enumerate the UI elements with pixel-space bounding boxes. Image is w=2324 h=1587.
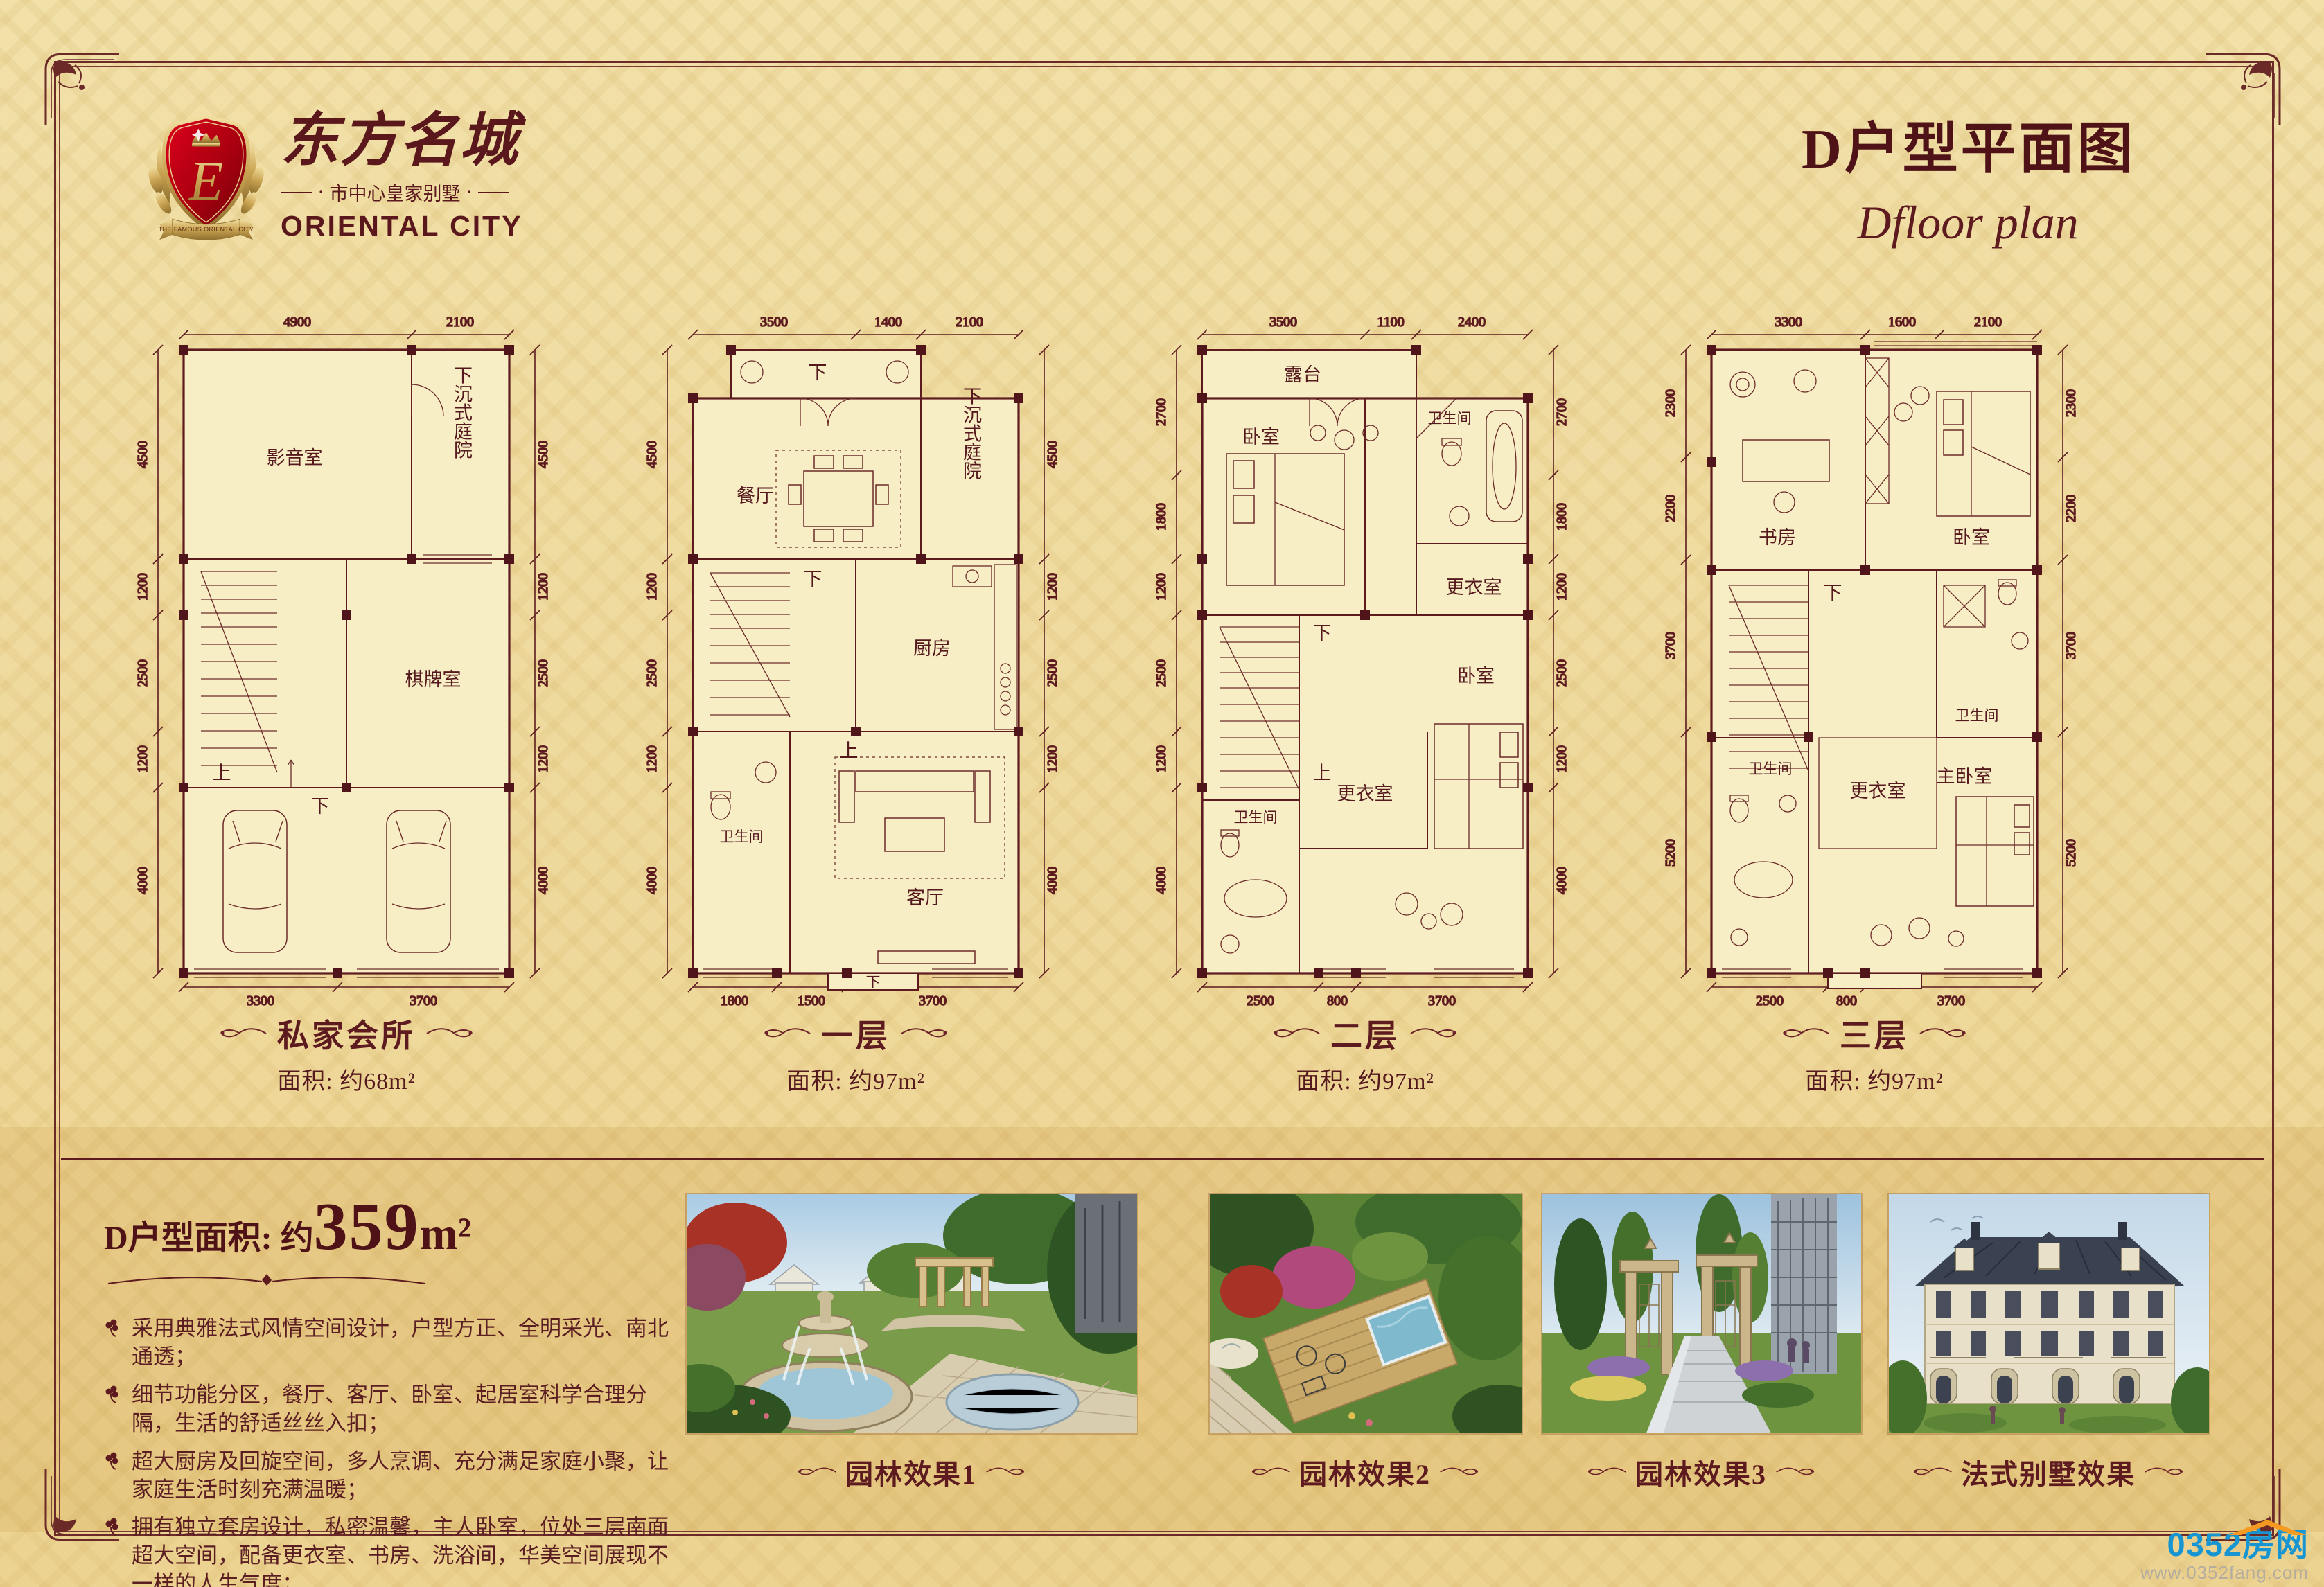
floorplan-floor2: 3500 1100 2400 2500 800 3700 2700 1800 1… — [1136, 294, 1594, 1096]
svg-text:1800: 1800 — [721, 993, 748, 1008]
room-label-bath: 卫生间 — [1428, 410, 1472, 427]
svg-text:1800: 1800 — [1554, 503, 1569, 531]
svg-text:4000: 4000 — [1045, 867, 1060, 894]
plan-body: 露台 卧室 卫生间 更衣室 下 上 更衣室 卧室 卫生间 — [1197, 345, 1533, 978]
svg-text:5200: 5200 — [1663, 839, 1678, 867]
room-label-study: 书房 — [1759, 527, 1796, 548]
room-label-bath2: 卫生间 — [1234, 809, 1278, 826]
svg-text:3700: 3700 — [919, 993, 947, 1008]
room-label-bath: 卫生间 — [1955, 707, 1999, 724]
photo-garden-2 — [1209, 1194, 1522, 1434]
plan-name: 一层 — [821, 1011, 890, 1056]
flourish-icon — [797, 1464, 837, 1480]
stair-up-label: 上 — [840, 741, 859, 761]
svg-text:1200: 1200 — [644, 573, 660, 601]
plan-body: 影音室 下沉式庭院 棋牌室 上 下 — [179, 345, 514, 978]
floorplan-floor1-drawing: 3500 1400 2100 1800 1500 3700 4500 1200 … — [627, 294, 1084, 1008]
plan-name: 三层 — [1840, 1011, 1909, 1056]
stair-up-label: 上 — [1313, 763, 1332, 783]
flourish-icon — [1251, 1464, 1291, 1480]
svg-text:2500: 2500 — [1554, 659, 1569, 687]
svg-text:2300: 2300 — [2063, 389, 2079, 417]
svg-text:1600: 1600 — [1888, 314, 1916, 330]
subtitle-dot: · — [466, 181, 473, 203]
area-heading-unit: m² — [420, 1209, 472, 1259]
svg-text:THE FAMOUS ORIENTAL CITY: THE FAMOUS ORIENTAL CITY — [159, 226, 254, 233]
feature-item: 超大厨房及回旋空间，多人烹调、充分满足家庭小聚，让家庭生活时刻充满温暖； — [104, 1448, 679, 1505]
subtitle-rule-right — [478, 192, 510, 193]
svg-text:2200: 2200 — [1663, 495, 1678, 522]
flourish-icon — [1587, 1464, 1627, 1480]
svg-text:2700: 2700 — [1554, 398, 1569, 426]
room-label-bedroom2: 卧室 — [1457, 666, 1495, 686]
room-label-chess: 棋牌室 — [405, 669, 461, 690]
svg-text:1200: 1200 — [536, 573, 551, 601]
svg-text:2400: 2400 — [1458, 314, 1486, 330]
stair-up-label: 上 — [213, 763, 231, 783]
flourish-icon — [1409, 1025, 1458, 1043]
feature-item: 细节功能分区，餐厅、客厅、卧室、起居室科学合理分隔，生活的舒适丝丝入扣； — [104, 1381, 679, 1438]
svg-text:2500: 2500 — [536, 659, 551, 687]
plan-area: 面积: 约68m² — [118, 1062, 575, 1096]
logo-monogram: E — [188, 150, 223, 212]
photo-caption: 园林效果1 — [686, 1452, 1136, 1492]
leaf-bullet-icon — [104, 1385, 121, 1403]
svg-text:1500: 1500 — [798, 993, 825, 1008]
room-label-bedroom: 卧室 — [1242, 427, 1280, 447]
svg-text:800: 800 — [1836, 993, 1857, 1008]
photo-caption: 法式别墅效果 — [1888, 1452, 2208, 1492]
area-heading: D户型面积: 约359m² — [104, 1188, 679, 1266]
svg-text:4000: 4000 — [1554, 867, 1569, 894]
flourish-icon — [219, 1025, 267, 1043]
brand-title-en: ORIENTAL CITY — [281, 210, 509, 242]
svg-text:3700: 3700 — [410, 993, 437, 1008]
room-label-courtyard: 下沉式庭院 — [451, 366, 472, 459]
page-subtitle: Dfloor plan — [1802, 195, 2134, 250]
section-divider — [61, 1158, 2264, 1160]
flourish-icon — [2144, 1464, 2184, 1480]
svg-text:2500: 2500 — [1756, 993, 1784, 1008]
watermark: 0352房网 www.0352fang.com — [2080, 1528, 2309, 1581]
plan-caption: 二层 — [1136, 1011, 1594, 1056]
room-label-bath2: 卫生间 — [1749, 761, 1793, 777]
frame-corner-ornament — [42, 48, 125, 132]
svg-text:3500: 3500 — [1269, 314, 1297, 330]
svg-text:3300: 3300 — [1775, 314, 1802, 330]
floorplan-floor2-drawing: 3500 1100 2400 2500 800 3700 2700 1800 1… — [1136, 294, 1594, 1008]
svg-text:800: 800 — [1327, 993, 1348, 1008]
flourish-icon — [1781, 1025, 1830, 1043]
svg-text:1100: 1100 — [1377, 314, 1404, 330]
flourish-icon — [900, 1025, 949, 1043]
svg-text:1200: 1200 — [1154, 745, 1169, 773]
bedroom1-furniture — [1226, 454, 1344, 585]
heading-flourish-icon — [104, 1270, 430, 1289]
room-label-master: 主卧室 — [1937, 766, 1993, 787]
svg-text:2300: 2300 — [1663, 389, 1678, 417]
svg-text:4000: 4000 — [536, 867, 551, 894]
svg-text:3700: 3700 — [1428, 993, 1456, 1008]
plan-area: 面积: 约97m² — [1646, 1062, 2103, 1096]
svg-text:2500: 2500 — [135, 659, 150, 687]
floorplan-floor3-drawing: 3300 1600 2100 2500 800 3700 2300 2200 3… — [1646, 294, 2103, 1008]
photo-caption: 园林效果3 — [1542, 1452, 1860, 1492]
svg-text:2500: 2500 — [1045, 659, 1060, 687]
photo-caption: 园林效果2 — [1209, 1452, 1521, 1492]
svg-text:2700: 2700 — [1154, 398, 1169, 426]
svg-text:2500: 2500 — [644, 659, 660, 687]
svg-text:4000: 4000 — [1154, 867, 1169, 894]
plan-body: 下 餐厅 下沉式庭院 厨房 下 上 卫生间 客厅 下 — [688, 345, 1023, 991]
leaf-bullet-icon — [104, 1518, 121, 1536]
details-block: D户型面积: 约359m² 采用典雅法式风情空间设计，户型方正、全明采光、南北通… — [104, 1188, 679, 1587]
plan-body: 书房 卧室 下 卫生间 更衣室 主卧室 卫生间 — [1707, 342, 2042, 988]
brand-block: 东方名城 · 市中心皇家别墅 · ORIENTAL CITY — [281, 111, 509, 242]
svg-text:1200: 1200 — [1554, 573, 1569, 601]
svg-text:3500: 3500 — [760, 314, 788, 330]
leaf-bullet-icon — [104, 1452, 121, 1470]
svg-text:4500: 4500 — [1045, 441, 1060, 468]
plan-area: 面积: 约97m² — [627, 1062, 1084, 1096]
plan-caption: 三层 — [1646, 1011, 2103, 1056]
room-label-bedroom: 卧室 — [1953, 527, 1990, 548]
svg-text:1200: 1200 — [1045, 745, 1060, 773]
photo-garden-1 — [686, 1194, 1138, 1434]
svg-text:2100: 2100 — [956, 314, 983, 330]
floorplan-floor1: 3500 1400 2100 1800 1500 3700 4500 1200 … — [627, 294, 1084, 1096]
page-title-block: D户型平面图 Dfloor plan — [1802, 104, 2134, 250]
svg-text:2100: 2100 — [1974, 314, 2002, 330]
room-label-courtyard: 下沉式庭院 — [960, 387, 981, 480]
room-label-dressing2: 更衣室 — [1337, 783, 1393, 804]
stair-down-label: 下 — [1313, 623, 1332, 644]
svg-text:4900: 4900 — [283, 314, 311, 330]
room-label-bath: 卫生间 — [720, 828, 764, 845]
page-title: D户型平面图 — [1802, 104, 2134, 184]
svg-text:4500: 4500 — [644, 441, 660, 468]
svg-text:1200: 1200 — [644, 745, 660, 773]
svg-text:3700: 3700 — [1937, 993, 1965, 1008]
flourish-icon — [1919, 1025, 1967, 1043]
floorplan-club-drawing: 4900 2100 3300 3700 4500 1200 2500 1200 … — [118, 294, 575, 1008]
flourish-icon — [1775, 1464, 1815, 1480]
svg-text:1200: 1200 — [1045, 573, 1060, 601]
brand-title-cn: 东方名城 — [281, 111, 509, 172]
stair-down-label: 下 — [809, 362, 827, 383]
flourish-icon — [1912, 1464, 1953, 1480]
plan-caption: 一层 — [627, 1011, 1084, 1056]
floorplan-floor3: 3300 1600 2100 2500 800 3700 2300 2200 3… — [1646, 294, 2103, 1096]
plan-name: 二层 — [1330, 1011, 1400, 1056]
feature-item: 拥有独立套房设计，私密温馨，主人卧室，位处三层南面超大空间，配备更衣室、书房、洗… — [104, 1514, 679, 1587]
watermark-url: www.0352fang.com — [2080, 1563, 2309, 1581]
svg-text:2100: 2100 — [446, 314, 474, 330]
stair-down-label: 下 — [804, 569, 822, 589]
stair-down-label: 下 — [311, 796, 330, 817]
roof-icon — [2226, 1518, 2309, 1536]
feature-item: 采用典雅法式风情空间设计，户型方正、全明采光、南北通透； — [104, 1315, 679, 1372]
watermark-site-name: 0352房网 — [2080, 1528, 2309, 1561]
svg-text:3300: 3300 — [247, 993, 274, 1008]
area-heading-prefix: D户型面积: 约 — [104, 1220, 314, 1257]
room-label-living: 客厅 — [906, 887, 944, 908]
room-label-dressing: 更衣室 — [1850, 781, 1906, 801]
subtitle-dot: · — [318, 181, 324, 203]
leaf-bullet-icon — [104, 1319, 121, 1337]
room-label-dining: 餐厅 — [737, 486, 774, 506]
flourish-icon — [763, 1025, 811, 1043]
svg-text:1200: 1200 — [135, 573, 150, 601]
svg-text:1200: 1200 — [1154, 573, 1169, 601]
subtitle-rule-left — [281, 192, 312, 193]
svg-text:4500: 4500 — [135, 441, 150, 468]
brand-logo: E THE FAMOUS ORIENTAL CITY — [139, 103, 274, 251]
room-label-kitchen: 厨房 — [913, 638, 951, 659]
area-heading-number: 359 — [314, 1189, 420, 1264]
svg-text:3700: 3700 — [1663, 632, 1678, 659]
flourish-icon — [425, 1025, 474, 1043]
svg-text:5200: 5200 — [2063, 839, 2079, 867]
svg-text:3700: 3700 — [2063, 632, 2079, 659]
flourish-icon — [1439, 1464, 1479, 1480]
svg-text:1400: 1400 — [874, 314, 902, 330]
svg-text:1200: 1200 — [536, 745, 551, 773]
svg-text:2200: 2200 — [2063, 495, 2079, 522]
svg-text:1200: 1200 — [1554, 745, 1569, 773]
room-label-dressing: 更衣室 — [1446, 577, 1502, 598]
room-label-terrace: 露台 — [1284, 364, 1321, 385]
plan-name: 私家会所 — [277, 1011, 416, 1056]
flourish-icon — [985, 1464, 1025, 1480]
svg-text:4000: 4000 — [644, 867, 660, 894]
frame-corner-ornament — [2201, 48, 2284, 132]
room-label-media: 影音室 — [267, 447, 323, 468]
stair-down-label: 下 — [1824, 583, 1842, 603]
plan-area: 面积: 约97m² — [1136, 1062, 1594, 1096]
svg-text:4500: 4500 — [536, 441, 551, 468]
svg-text:2500: 2500 — [1247, 993, 1274, 1008]
svg-text:4000: 4000 — [135, 867, 150, 894]
brand-subtitle-text: 市中心皇家别墅 — [330, 179, 461, 206]
photo-garden-3 — [1542, 1194, 1862, 1434]
brochure-page: E THE FAMOUS ORIENTAL CITY 东方名城 · 市中心皇家别… — [0, 0, 2324, 1587]
stair-down-label: 下 — [866, 974, 881, 991]
photo-villa — [1888, 1194, 2210, 1434]
plan-caption: 私家会所 — [118, 1011, 575, 1056]
svg-text:2500: 2500 — [1154, 659, 1169, 687]
svg-text:1200: 1200 — [135, 745, 150, 773]
brand-subtitle: · 市中心皇家别墅 · — [281, 179, 509, 206]
flourish-icon — [1272, 1025, 1321, 1043]
floorplan-club: 4900 2100 3300 3700 4500 1200 2500 1200 … — [118, 294, 575, 1096]
svg-text:1800: 1800 — [1154, 503, 1169, 531]
